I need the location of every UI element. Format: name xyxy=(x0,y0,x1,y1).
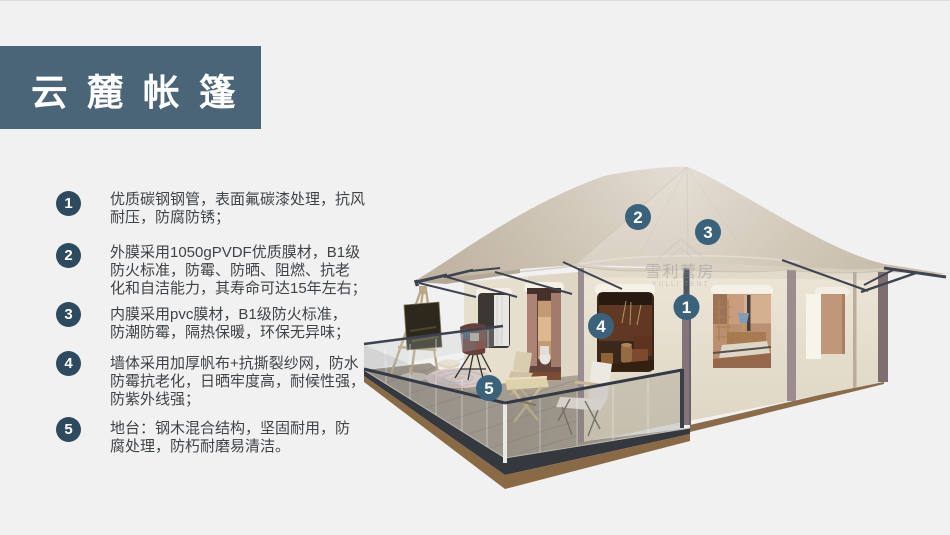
svg-text:2: 2 xyxy=(633,208,642,227)
svg-text:YULLI TENT: YULLI TENT xyxy=(652,281,710,288)
svg-text:3: 3 xyxy=(703,223,712,242)
svg-text:4: 4 xyxy=(596,317,606,336)
svg-text:5: 5 xyxy=(484,379,493,398)
svg-text:雪利营房: 雪利营房 xyxy=(645,263,715,281)
svg-text:1: 1 xyxy=(682,298,691,317)
